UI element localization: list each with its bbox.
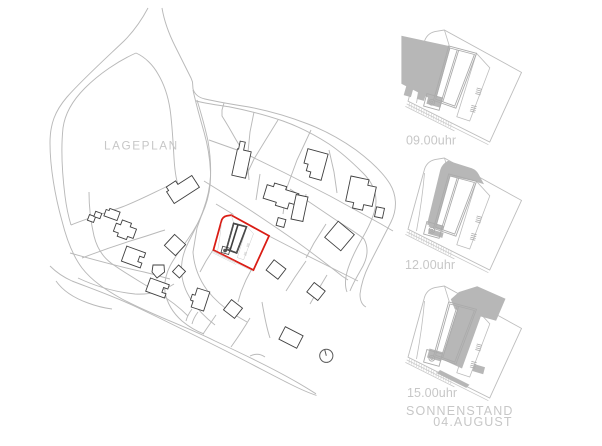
svg-text:15.00uhr: 15.00uhr	[407, 386, 457, 400]
svg-text:04.AUGUST: 04.AUGUST	[433, 415, 512, 429]
svg-text:09.00uhr: 09.00uhr	[406, 133, 456, 147]
svg-text:LAGEPLAN: LAGEPLAN	[104, 138, 179, 152]
svg-text:12.00uhr: 12.00uhr	[405, 258, 455, 272]
